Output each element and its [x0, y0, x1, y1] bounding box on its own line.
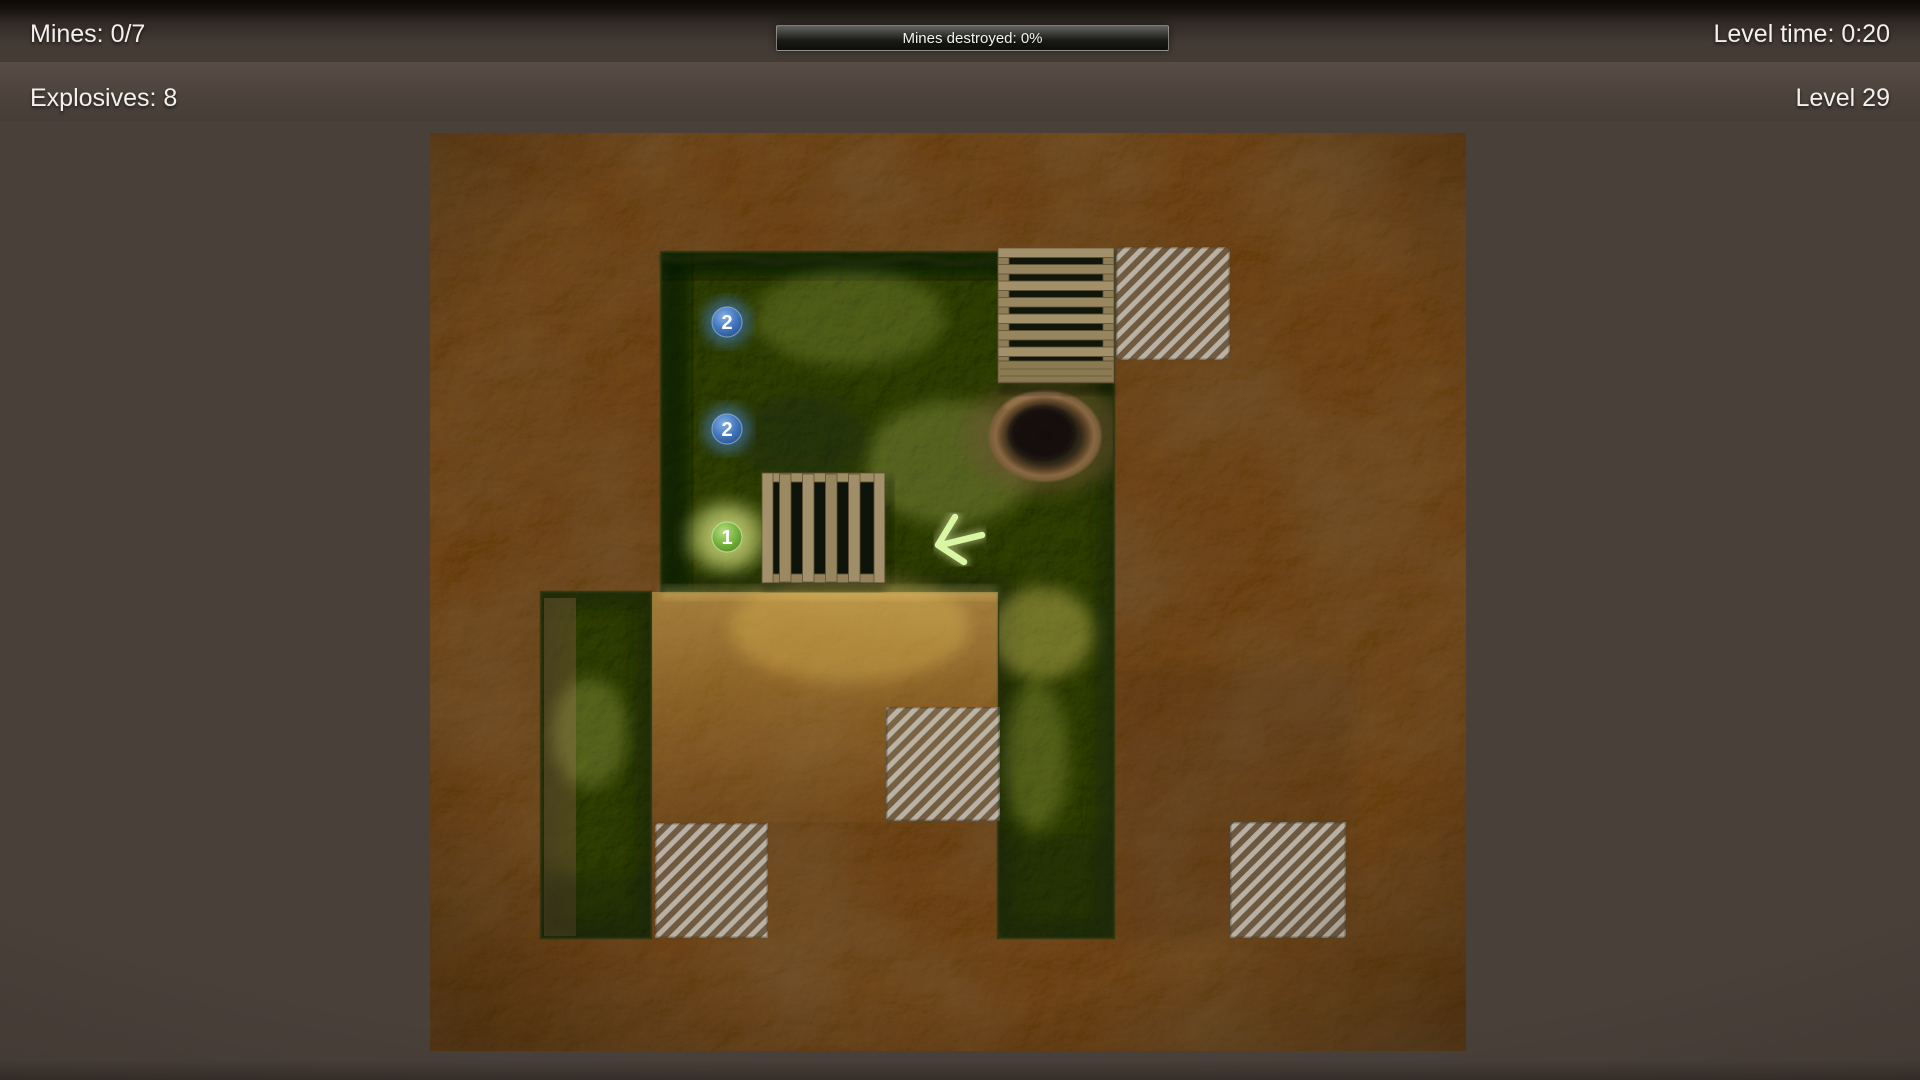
board-vignette: [430, 133, 1466, 1051]
explosives-counter: Explosives: 8: [30, 84, 177, 113]
level-time: Level time: 0:20: [1714, 20, 1891, 49]
level-number: Level 29: [1795, 84, 1890, 113]
mines-destroyed-label: Mines destroyed: 0%: [777, 26, 1168, 50]
mines-counter: Mines: 0/7: [30, 20, 145, 49]
mines-destroyed-progressbar: Mines destroyed: 0%: [776, 25, 1169, 51]
game-screen: { "hud": { "mines": "Mines: 0/7", "progr…: [0, 0, 1920, 1080]
game-board[interactable]: 2 2 1: [430, 133, 1466, 1051]
hud-second-bar: [0, 62, 1920, 121]
